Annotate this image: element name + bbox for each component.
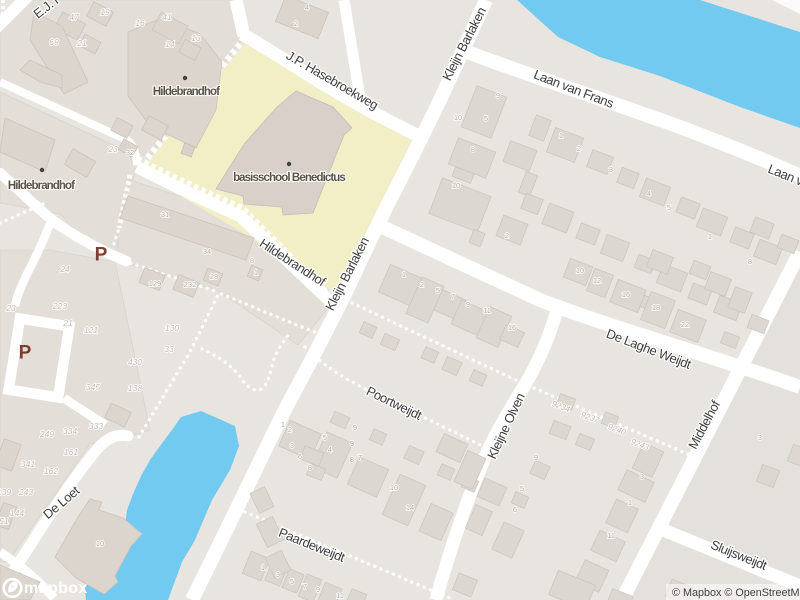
svg-text:16: 16 — [622, 290, 630, 299]
svg-text:8: 8 — [471, 145, 475, 154]
svg-text:8: 8 — [748, 257, 752, 266]
svg-text:2: 2 — [505, 231, 509, 240]
svg-text:3: 3 — [758, 433, 762, 442]
svg-text:8: 8 — [350, 455, 354, 464]
svg-text:6: 6 — [298, 452, 302, 461]
svg-text:249: 249 — [39, 429, 54, 439]
svg-text:16: 16 — [135, 18, 145, 28]
svg-text:41: 41 — [162, 12, 172, 22]
svg-text:14: 14 — [406, 503, 414, 512]
svg-text:24: 24 — [59, 264, 70, 274]
svg-text:4: 4 — [305, 3, 309, 12]
svg-text:7: 7 — [451, 292, 455, 301]
svg-text:139: 139 — [0, 487, 11, 497]
svg-text:13: 13 — [191, 33, 201, 43]
svg-text:6: 6 — [513, 505, 517, 514]
svg-text:9: 9 — [353, 423, 357, 432]
svg-text:mapbox: mapbox — [24, 580, 88, 597]
svg-text:10: 10 — [576, 266, 584, 275]
svg-text:21: 21 — [76, 38, 87, 48]
svg-text:10: 10 — [452, 181, 460, 190]
svg-text:10: 10 — [454, 113, 462, 122]
svg-text:47: 47 — [69, 12, 79, 22]
svg-text:5: 5 — [436, 286, 440, 295]
svg-text:2: 2 — [294, 19, 298, 28]
svg-text:162: 162 — [44, 466, 58, 476]
svg-text:334: 334 — [63, 426, 77, 436]
svg-text:333: 333 — [89, 421, 103, 431]
svg-text:21: 21 — [62, 318, 73, 328]
svg-text:1: 1 — [628, 498, 632, 507]
svg-text:5: 5 — [667, 203, 671, 212]
svg-text:3: 3 — [276, 570, 280, 579]
svg-text:10: 10 — [390, 483, 398, 492]
svg-text:5: 5 — [520, 484, 524, 493]
svg-text:1: 1 — [402, 270, 406, 279]
svg-text:1: 1 — [559, 131, 563, 140]
svg-text:12: 12 — [593, 276, 601, 285]
svg-text:3: 3 — [290, 441, 294, 450]
svg-text:1: 1 — [708, 232, 712, 241]
svg-text:9: 9 — [350, 439, 354, 448]
svg-text:23: 23 — [107, 144, 118, 154]
svg-text:51: 51 — [0, 516, 9, 526]
svg-text:11: 11 — [336, 591, 344, 600]
svg-text:7: 7 — [358, 453, 362, 462]
svg-text:232: 232 — [184, 280, 197, 289]
svg-text:18: 18 — [652, 303, 660, 312]
svg-text:2: 2 — [577, 144, 581, 153]
svg-text:69: 69 — [49, 37, 59, 47]
svg-text:14: 14 — [165, 39, 175, 49]
svg-text:33: 33 — [164, 344, 174, 354]
svg-text:16: 16 — [508, 323, 516, 332]
svg-text:121: 121 — [84, 325, 98, 335]
svg-text:5: 5 — [290, 577, 294, 586]
svg-text:P: P — [95, 245, 108, 266]
svg-text:129: 129 — [149, 279, 162, 288]
svg-text:11: 11 — [483, 306, 491, 315]
svg-text:9: 9 — [466, 300, 470, 309]
svg-text:28: 28 — [210, 272, 218, 281]
svg-text:basisschool Benedictus: basisschool Benedictus — [233, 172, 345, 184]
svg-text:430: 430 — [128, 357, 142, 367]
svg-text:8: 8 — [308, 463, 312, 472]
svg-text:144: 144 — [10, 508, 24, 518]
svg-text:1: 1 — [261, 563, 265, 572]
svg-text:2: 2 — [288, 425, 292, 434]
svg-text:19: 19 — [100, 7, 110, 17]
svg-text:© Mapbox © OpenStreetMap: © Mapbox © OpenStreetMap — [672, 587, 800, 599]
svg-text:9: 9 — [496, 91, 500, 100]
svg-text:9: 9 — [534, 453, 538, 462]
svg-text:223: 223 — [52, 301, 67, 311]
svg-text:4: 4 — [328, 445, 332, 454]
svg-text:11: 11 — [607, 531, 615, 540]
svg-text:3: 3 — [609, 165, 613, 174]
svg-text:31: 31 — [161, 210, 169, 219]
svg-text:23: 23 — [5, 303, 16, 313]
svg-text:341: 341 — [21, 459, 35, 469]
svg-text:130: 130 — [165, 323, 179, 333]
svg-text:243: 243 — [18, 487, 33, 497]
svg-text:22: 22 — [681, 320, 689, 329]
svg-text:P: P — [19, 343, 32, 364]
svg-text:161: 161 — [64, 447, 78, 457]
svg-text:1: 1 — [281, 420, 285, 429]
svg-text:3: 3 — [640, 472, 644, 481]
svg-text:5: 5 — [323, 433, 327, 442]
svg-text:5: 5 — [484, 114, 488, 123]
svg-text:9: 9 — [316, 585, 320, 594]
svg-text:1: 1 — [254, 268, 258, 277]
svg-text:8: 8 — [250, 256, 254, 265]
svg-text:138: 138 — [128, 383, 142, 393]
svg-text:4: 4 — [647, 189, 651, 198]
svg-text:345: 345 — [86, 382, 100, 392]
svg-text:2: 2 — [420, 280, 424, 289]
svg-text:10: 10 — [96, 539, 104, 548]
svg-text:Hildebrandhof: Hildebrandhof — [153, 86, 220, 98]
svg-text:Hildebrandhof: Hildebrandhof — [8, 180, 75, 192]
svg-text:7: 7 — [303, 582, 307, 591]
svg-text:32: 32 — [126, 148, 134, 157]
svg-text:34: 34 — [203, 247, 211, 256]
